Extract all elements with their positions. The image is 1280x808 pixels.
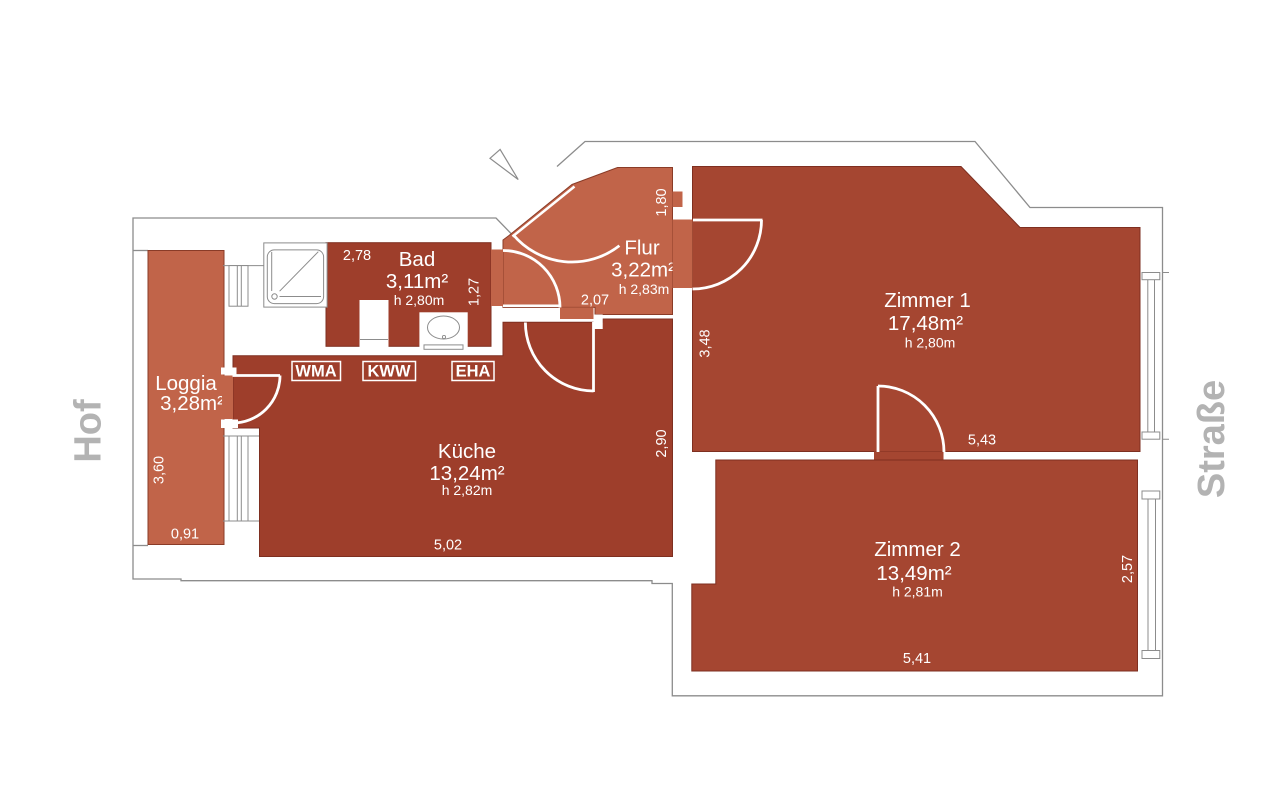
svg-text:Flur: Flur — [624, 237, 659, 260]
svg-text:Zimmer 1: Zimmer 1 — [884, 289, 971, 312]
svg-text:17,48m²: 17,48m² — [888, 312, 963, 335]
svg-text:1,80: 1,80 — [654, 188, 670, 216]
svg-text:EHA: EHA — [456, 363, 491, 381]
svg-text:2,07: 2,07 — [581, 293, 609, 309]
svg-text:Bad: Bad — [399, 248, 435, 271]
svg-text:3,11m²: 3,11m² — [386, 270, 448, 293]
svg-text:h 2,82m: h 2,82m — [442, 482, 493, 498]
svg-text:Straße: Straße — [1191, 380, 1233, 498]
svg-text:13,49m²: 13,49m² — [876, 562, 951, 585]
svg-text:Küche: Küche — [438, 440, 496, 463]
svg-text:2,57: 2,57 — [1120, 555, 1136, 583]
svg-text:1,27: 1,27 — [466, 278, 482, 306]
svg-text:0,91: 0,91 — [171, 527, 199, 543]
svg-text:Hof: Hof — [68, 399, 110, 463]
svg-text:3,48: 3,48 — [698, 329, 714, 357]
svg-text:h 2,81m: h 2,81m — [892, 584, 943, 600]
svg-text:h 2,83m: h 2,83m — [619, 281, 670, 297]
svg-text:KWW: KWW — [367, 363, 410, 381]
svg-text:5,43: 5,43 — [968, 433, 996, 449]
svg-text:WMA: WMA — [295, 363, 336, 381]
svg-text:5,41: 5,41 — [903, 651, 931, 667]
svg-text:2,90: 2,90 — [654, 429, 670, 457]
svg-text:h 2,80m: h 2,80m — [905, 335, 956, 351]
svg-text:3,60: 3,60 — [151, 456, 167, 484]
svg-text:2,78: 2,78 — [343, 248, 371, 264]
svg-text:h 2,80m: h 2,80m — [394, 292, 445, 308]
svg-text:3,22m²: 3,22m² — [611, 259, 675, 282]
svg-text:Zimmer 2: Zimmer 2 — [874, 538, 961, 561]
svg-text:3,28m²: 3,28m² — [160, 392, 224, 415]
svg-text:5,02: 5,02 — [434, 538, 462, 554]
